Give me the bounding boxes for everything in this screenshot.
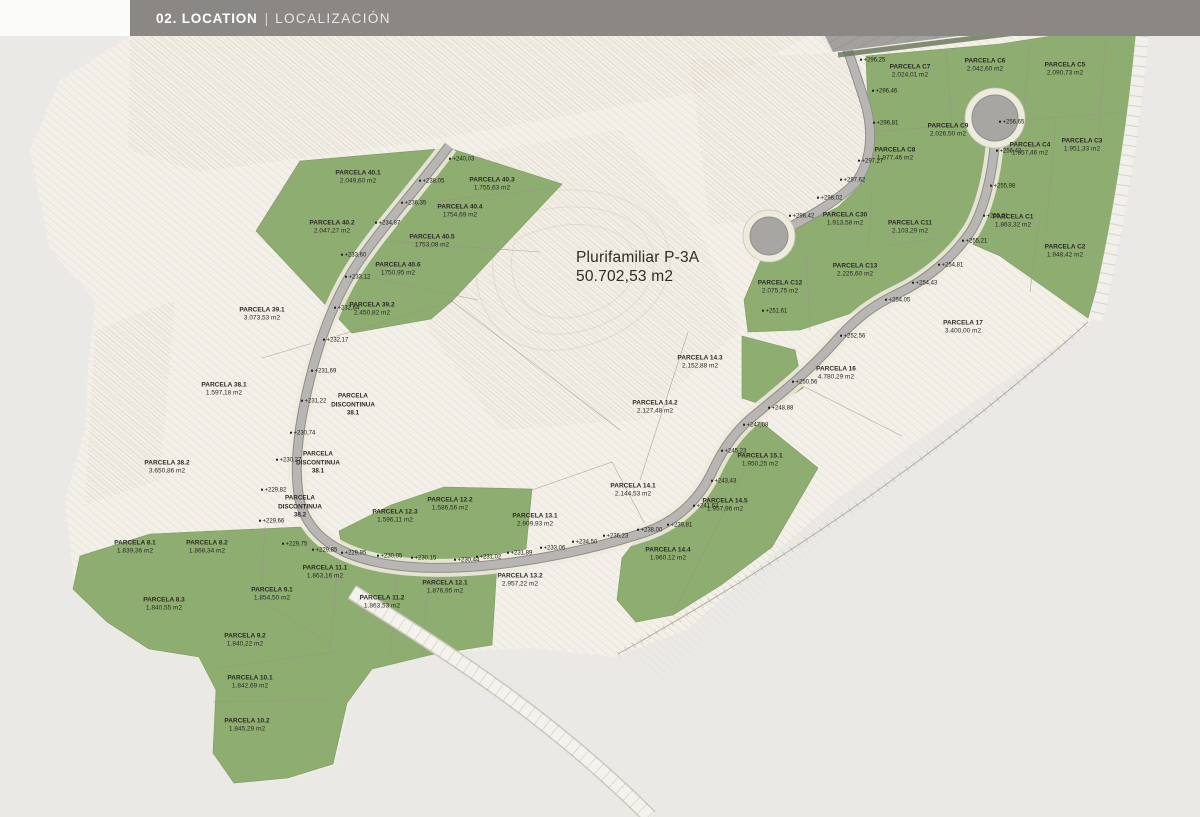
site-plan-drawing [0,0,1200,817]
section-subtitle: LOCALIZACIÓN [275,11,391,26]
header-corner-spacer [0,0,130,36]
section-title-divider: | [265,11,269,26]
section-title: 02. LOCATION [156,11,258,26]
location-plan-page: Plurifamiliar P-3A 50.702,53 m2 E - DO P… [0,0,1200,817]
section-header-bar: 02. LOCATION | LOCALIZACIÓN [130,0,1200,36]
